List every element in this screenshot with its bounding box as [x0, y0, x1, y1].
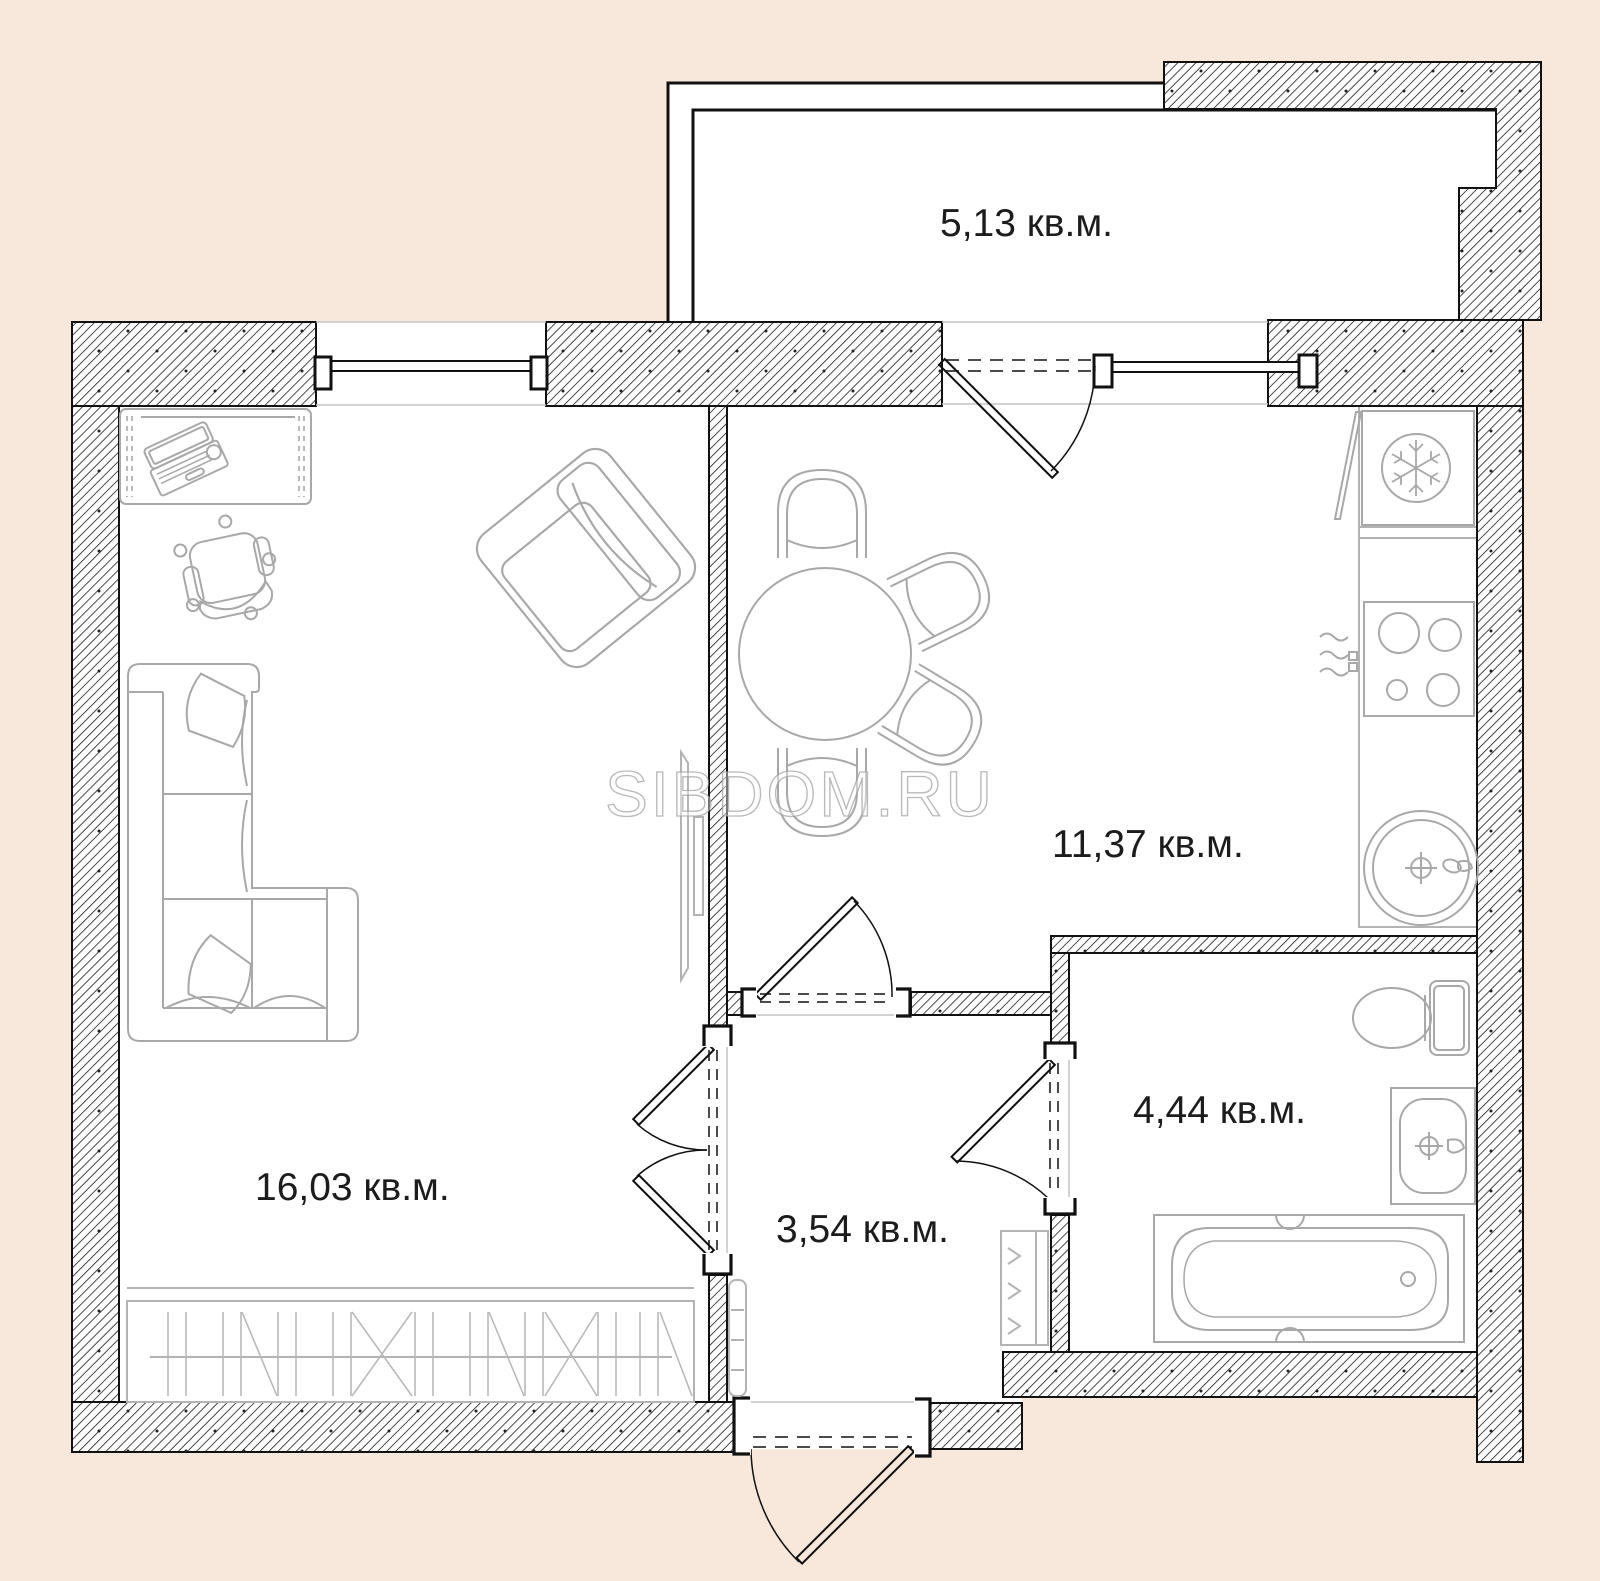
svg-text:5,13 кв.м.: 5,13 кв.м. — [940, 202, 1113, 245]
svg-text:16,03 кв.м.: 16,03 кв.м. — [255, 1166, 450, 1209]
svg-text:11,37 кв.м.: 11,37 кв.м. — [1052, 823, 1244, 866]
svg-text:3,54 кв.м.: 3,54 кв.м. — [776, 1208, 949, 1251]
svg-text:4,44 кв.м.: 4,44 кв.м. — [1133, 1089, 1306, 1132]
svg-text:SIBDOM.RU: SIBDOM.RU — [605, 758, 995, 830]
